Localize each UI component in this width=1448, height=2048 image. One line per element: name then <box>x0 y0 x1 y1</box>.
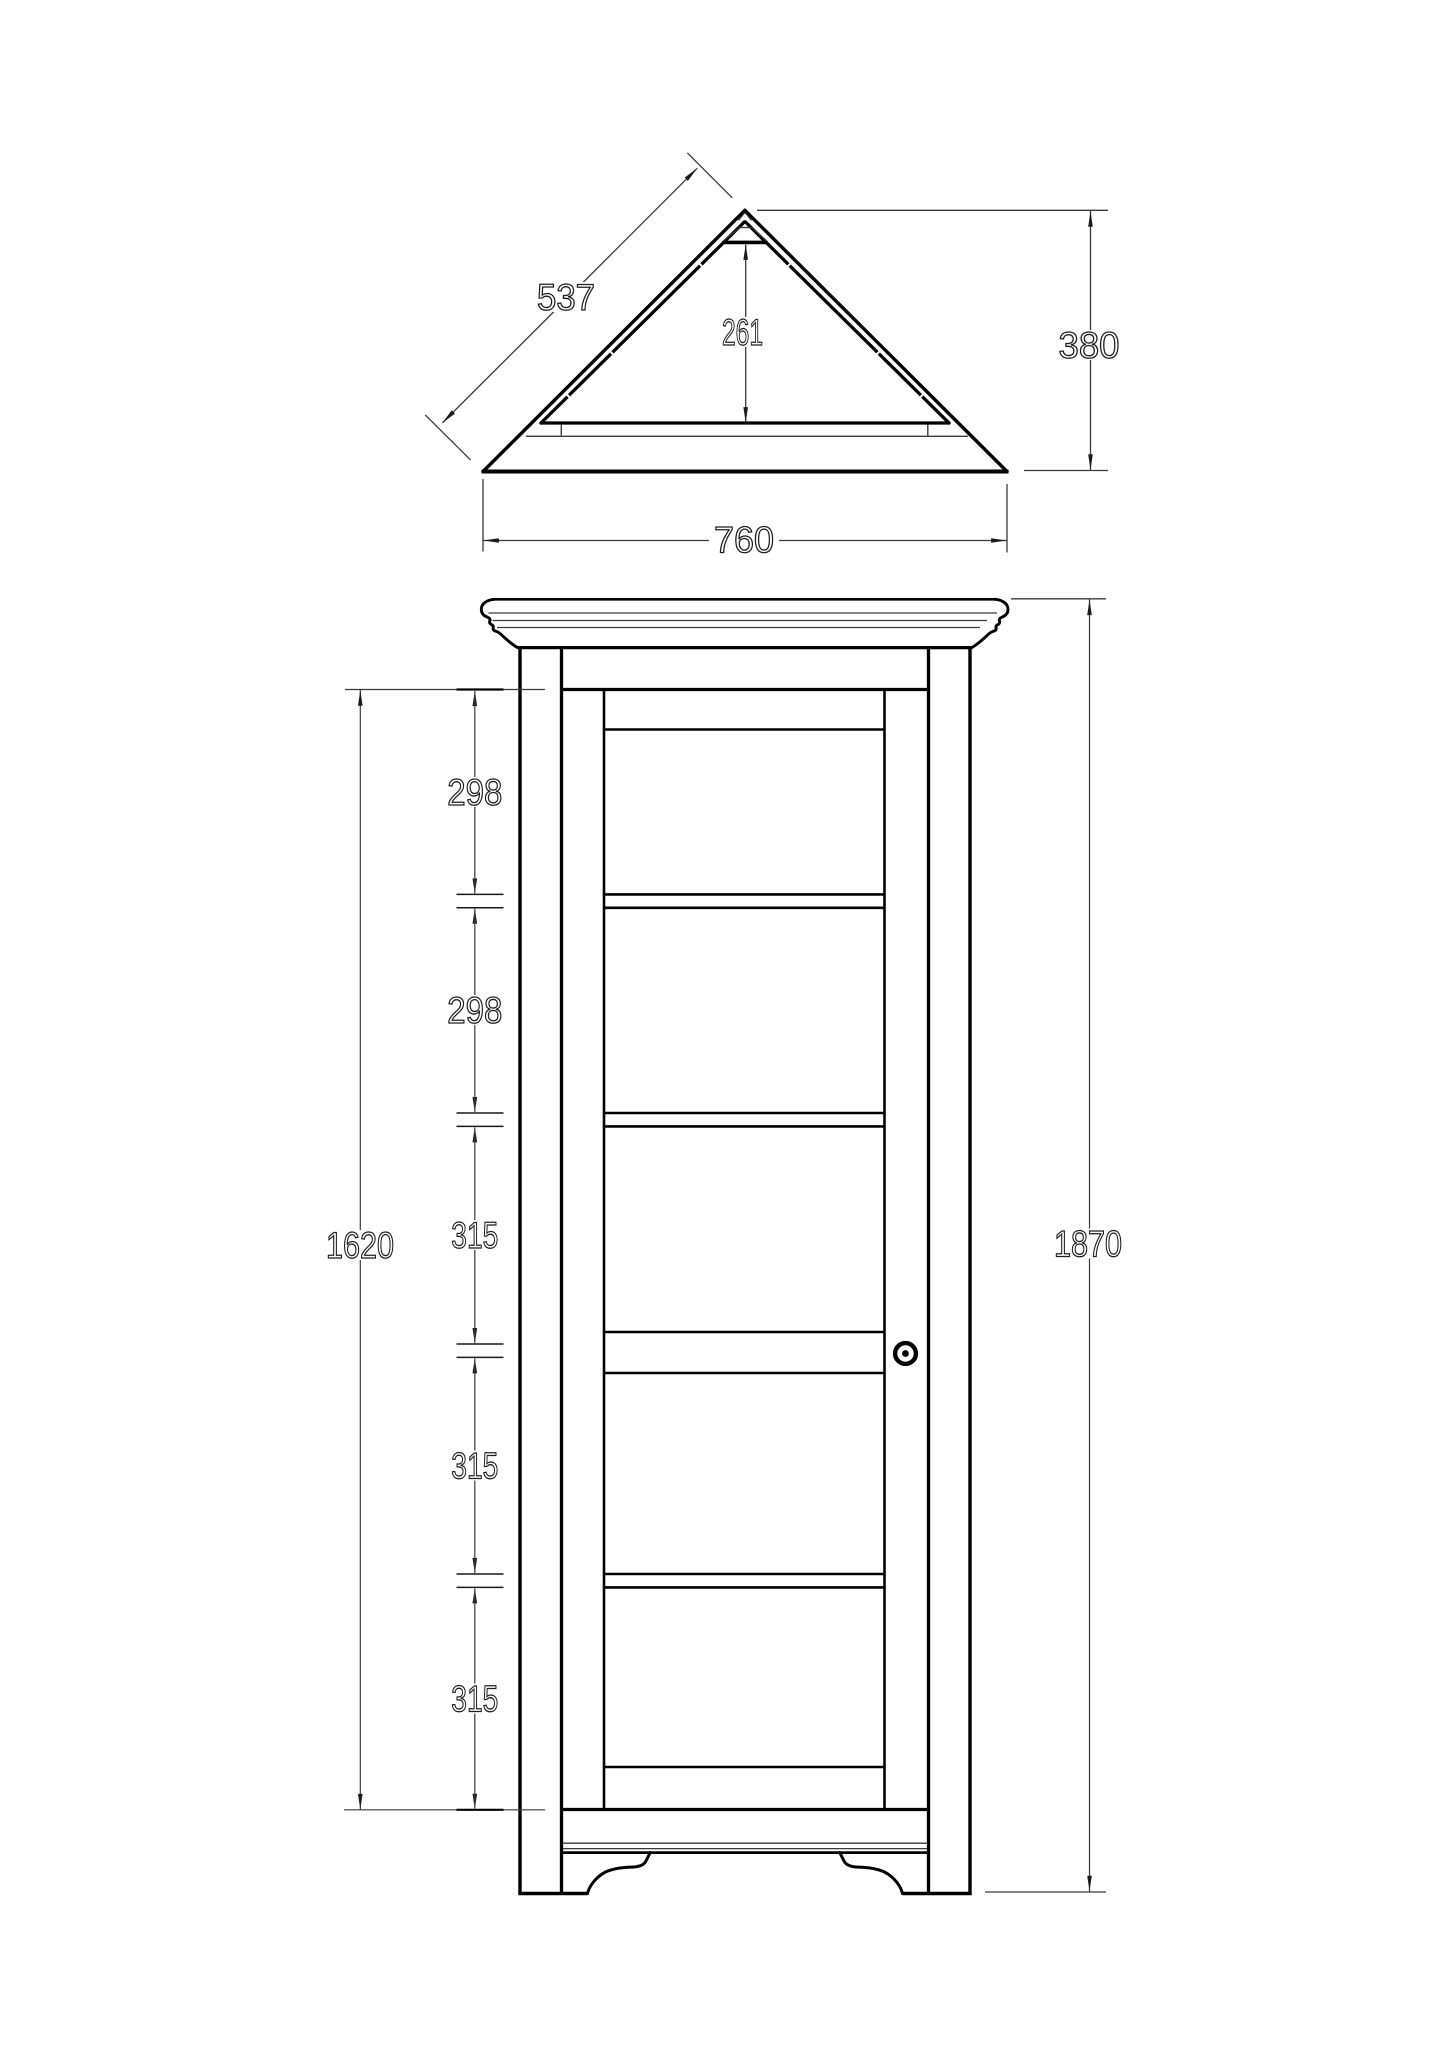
svg-text:315: 315 <box>451 1446 498 1487</box>
svg-text:315: 315 <box>451 1679 498 1720</box>
svg-text:298: 298 <box>447 772 502 813</box>
svg-text:1870: 1870 <box>1054 1224 1122 1265</box>
svg-text:315: 315 <box>451 1215 498 1256</box>
svg-text:537: 537 <box>537 277 595 318</box>
svg-text:380: 380 <box>1059 325 1120 366</box>
svg-text:760: 760 <box>714 520 774 561</box>
svg-text:1620: 1620 <box>326 1225 394 1266</box>
svg-text:261: 261 <box>722 312 763 353</box>
svg-text:298: 298 <box>447 990 502 1031</box>
